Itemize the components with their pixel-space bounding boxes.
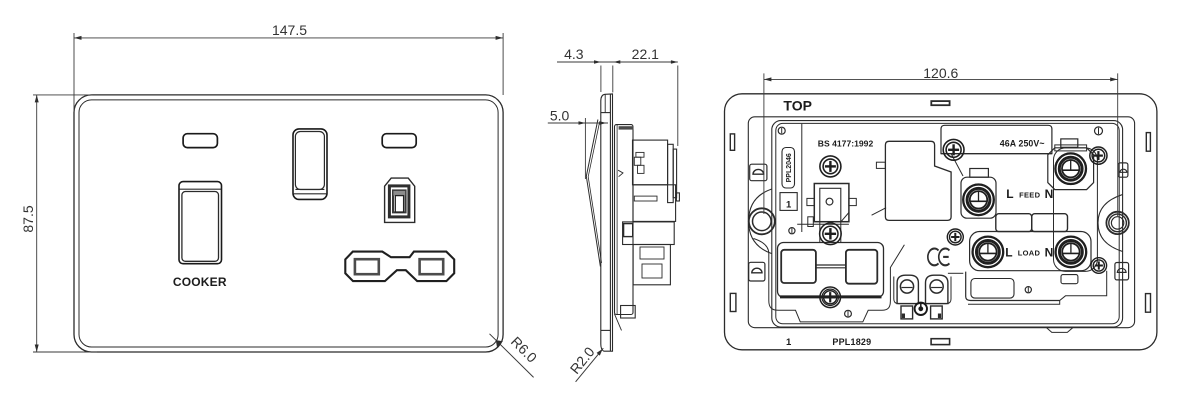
svg-text:147.5: 147.5 xyxy=(272,22,307,38)
svg-text:4.3: 4.3 xyxy=(564,46,584,62)
svg-text:1: 1 xyxy=(786,337,792,348)
svg-text:COOKER: COOKER xyxy=(173,275,227,289)
svg-text:5.0: 5.0 xyxy=(550,108,570,124)
svg-text:PPL2046: PPL2046 xyxy=(786,153,793,182)
svg-text:87.5: 87.5 xyxy=(20,205,36,232)
svg-text:L: L xyxy=(1005,245,1012,259)
svg-text:FEED: FEED xyxy=(1019,190,1040,199)
svg-text:120.6: 120.6 xyxy=(923,65,958,81)
svg-text:LOAD: LOAD xyxy=(1018,249,1041,258)
svg-text:22.1: 22.1 xyxy=(632,46,659,62)
svg-text:PPL1829: PPL1829 xyxy=(832,337,871,347)
svg-text:N: N xyxy=(1045,245,1054,259)
svg-text:N: N xyxy=(1045,187,1054,201)
svg-text:1: 1 xyxy=(786,199,792,210)
svg-text:L: L xyxy=(1006,187,1013,201)
svg-text:46A 250V~: 46A 250V~ xyxy=(1000,139,1045,149)
svg-text:TOP: TOP xyxy=(783,98,812,114)
svg-text:BS 4177:1992: BS 4177:1992 xyxy=(818,139,874,149)
